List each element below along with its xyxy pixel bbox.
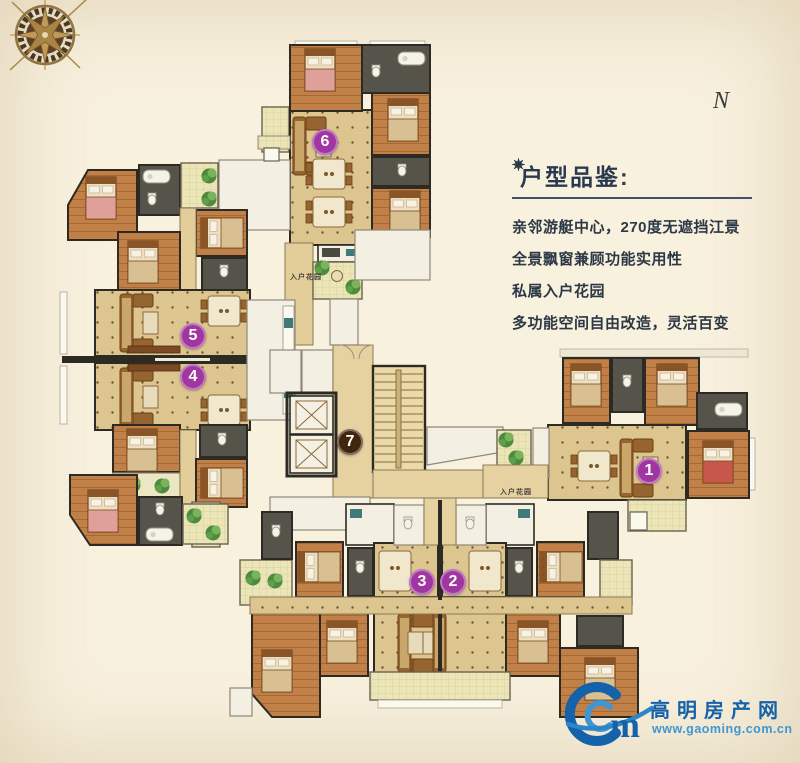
unit-marker-2: 2 bbox=[440, 569, 466, 595]
site-logo: m 高明房产网 www.gaoming.com.cn bbox=[560, 680, 795, 750]
feature-item: 私属入户花园 bbox=[512, 280, 752, 301]
feature-item: 多功能空间自由改造，灵活百变 bbox=[512, 312, 752, 333]
feature-item: 亲邻游艇中心，270度无遮挡江景 bbox=[512, 216, 752, 237]
unit-marker-6: 6 bbox=[312, 129, 338, 155]
feature-item: 全景飘窗兼顾功能实用性 bbox=[512, 248, 752, 269]
feature-text: 私属入户花园 bbox=[512, 280, 605, 301]
entry-garden-label: 入户花园 bbox=[500, 487, 532, 497]
compass-icon bbox=[0, 0, 115, 75]
features-panel: 户型品鉴: 亲邻游艇中心，270度无遮挡江景 全景飘窗兼顾功能实用性 私属入户花… bbox=[512, 158, 752, 344]
feature-text: 多功能空间自由改造，灵活百变 bbox=[512, 312, 729, 333]
site-url: www.gaoming.com.cn bbox=[652, 722, 793, 736]
flower-bullet-icon bbox=[512, 158, 525, 171]
unit-marker-1: 1 bbox=[636, 458, 662, 484]
features-list: 亲邻游艇中心，270度无遮挡江景 全景飘窗兼顾功能实用性 私属入户花园 多功能空… bbox=[512, 216, 752, 333]
title-underline bbox=[512, 197, 752, 199]
floor-plan bbox=[0, 0, 800, 763]
logo-letter: m bbox=[610, 705, 640, 745]
unit-marker-5: 5 bbox=[180, 323, 206, 349]
elevator-icon bbox=[290, 435, 333, 473]
elevator-icon bbox=[290, 396, 333, 434]
stairs-icon bbox=[373, 366, 425, 472]
entry-garden-label: 入户花园 bbox=[290, 272, 322, 282]
unit-marker-7: 7 bbox=[337, 429, 363, 455]
feature-text: 全景飘窗兼顾功能实用性 bbox=[512, 248, 683, 269]
site-name: 高明房产网 bbox=[650, 694, 785, 723]
unit-marker-3: 3 bbox=[409, 569, 435, 595]
floorplan-poster: 1234567入户花园入户花园 户型品鉴: 亲邻游艇中心，270度无遮挡江景 全… bbox=[0, 0, 800, 763]
feature-text: 亲邻游艇中心，270度无遮挡江景 bbox=[512, 216, 740, 237]
compass-north-label: N bbox=[713, 88, 729, 115]
unit-marker-4: 4 bbox=[180, 364, 206, 390]
features-title: 户型品鉴: bbox=[512, 158, 752, 192]
logo-gm-icon: m bbox=[560, 680, 655, 750]
core-area bbox=[270, 345, 503, 530]
